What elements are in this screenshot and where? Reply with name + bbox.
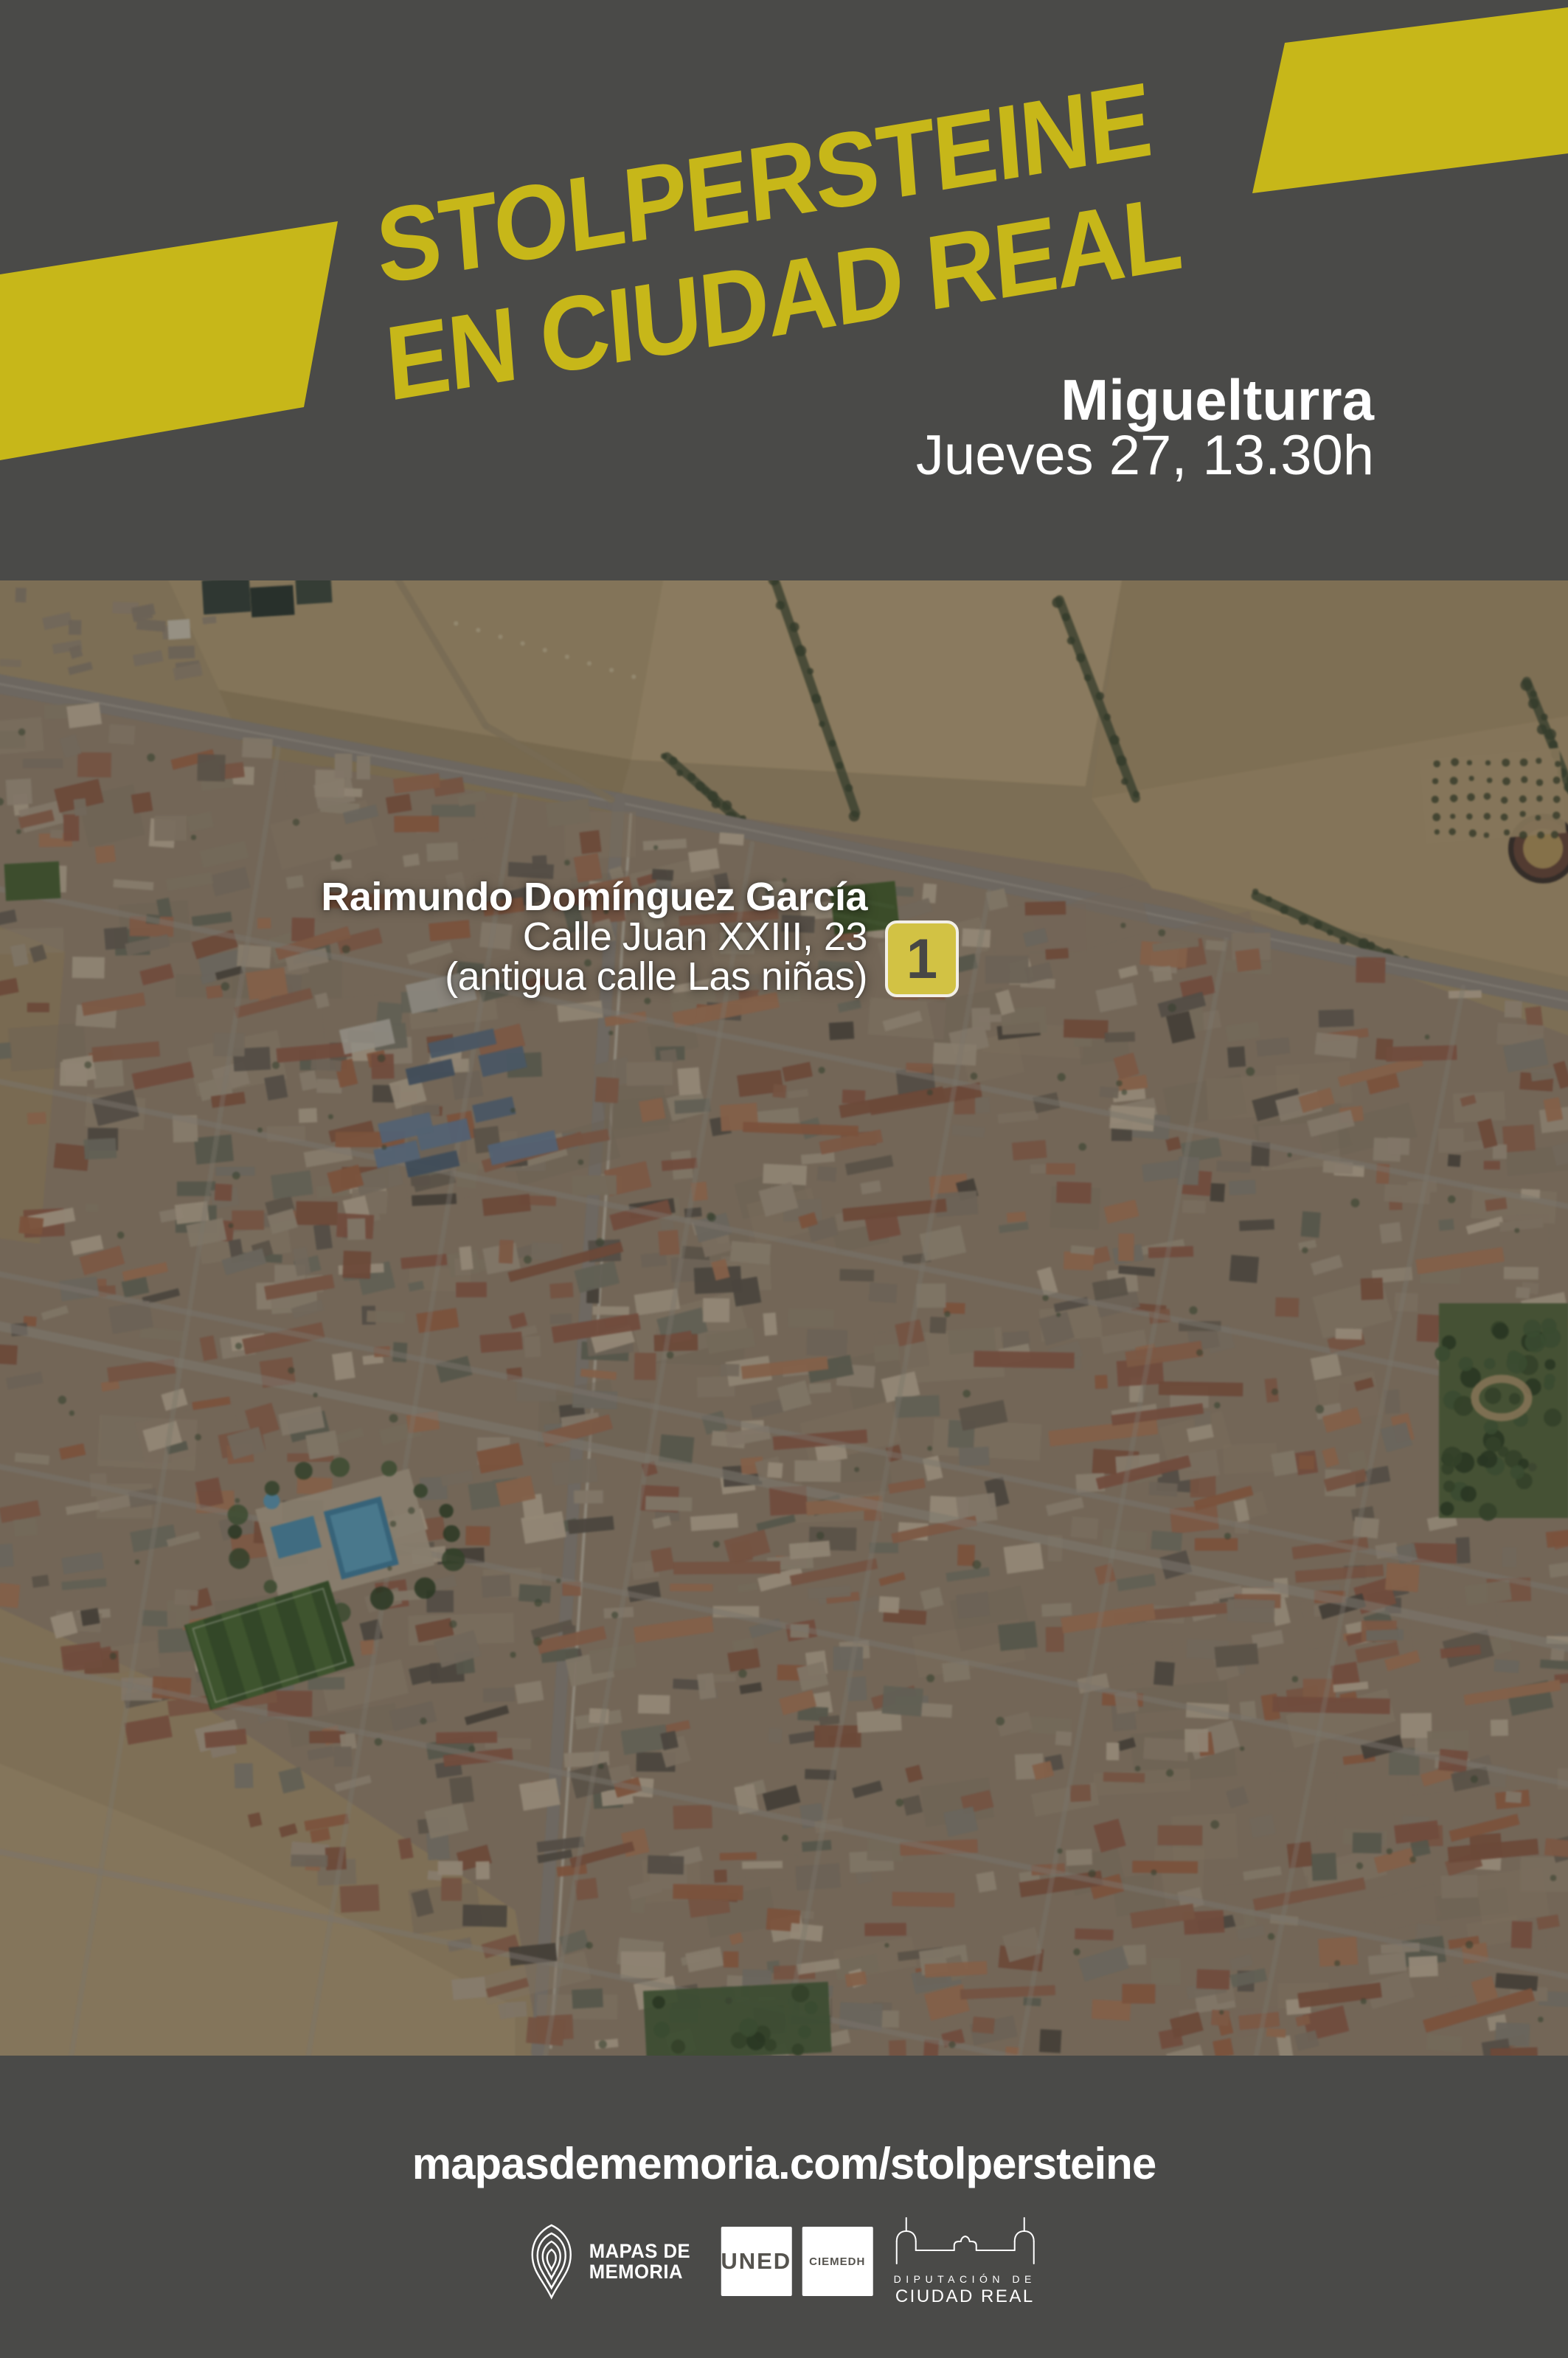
diputacion-line-1: DIPUTACIÓN DE <box>889 2272 1041 2286</box>
uned-logo: UNED <box>721 2227 791 2296</box>
footer: mapasdememoria.com/stolpersteine MAPAS D… <box>0 2056 1568 2358</box>
header: STOLPERSTEINE EN CIUDAD REAL Miguelturra… <box>0 0 1568 580</box>
aerial-map: Raimundo Domínguez García Calle Juan XXI… <box>0 580 1568 2056</box>
poster-root: STOLPERSTEINE EN CIUDAD REAL Miguelturra… <box>0 0 1568 2358</box>
person-name: Raimundo Domínguez García <box>321 877 867 917</box>
marker-number-badge: 1 <box>885 920 959 997</box>
website-url: mapasdememoria.com/stolpersteine <box>0 2138 1568 2189</box>
event-info: Miguelturra Jueves 27, 13.30h <box>916 372 1374 485</box>
mapas-de-memoria-logo: MAPAS DE MEMORIA <box>589 2241 690 2282</box>
mapas-line-2: MEMORIA <box>589 2261 690 2282</box>
ciemedh-logo: CIEMEDH <box>802 2227 873 2296</box>
aerial-photo <box>0 580 1568 2056</box>
diputacion-building-icon <box>889 2216 1041 2265</box>
diputacion-line-2: CIUDAD REAL <box>889 2286 1041 2307</box>
former-address-line: (antigua calle Las niñas) <box>321 957 867 996</box>
marker-number: 1 <box>906 927 937 991</box>
event-location: Miguelturra <box>916 372 1374 427</box>
address-line: Calle Juan XXIII, 23 <box>321 917 867 957</box>
logo-row: MAPAS DE MEMORIA UNED CIEMEDH <box>527 2222 1041 2300</box>
diputacion-logo: DIPUTACIÓN DE CIUDAD REAL <box>889 2216 1041 2307</box>
ciemedh-logo-text: CIEMEDH <box>809 2255 865 2268</box>
fingerprint-icon <box>527 2223 576 2300</box>
uned-logo-text: UNED <box>721 2248 791 2275</box>
mapas-line-1: MAPAS DE <box>589 2241 690 2261</box>
event-datetime: Jueves 27, 13.30h <box>916 427 1374 485</box>
stolperstein-label: Raimundo Domínguez García Calle Juan XXI… <box>321 877 867 996</box>
